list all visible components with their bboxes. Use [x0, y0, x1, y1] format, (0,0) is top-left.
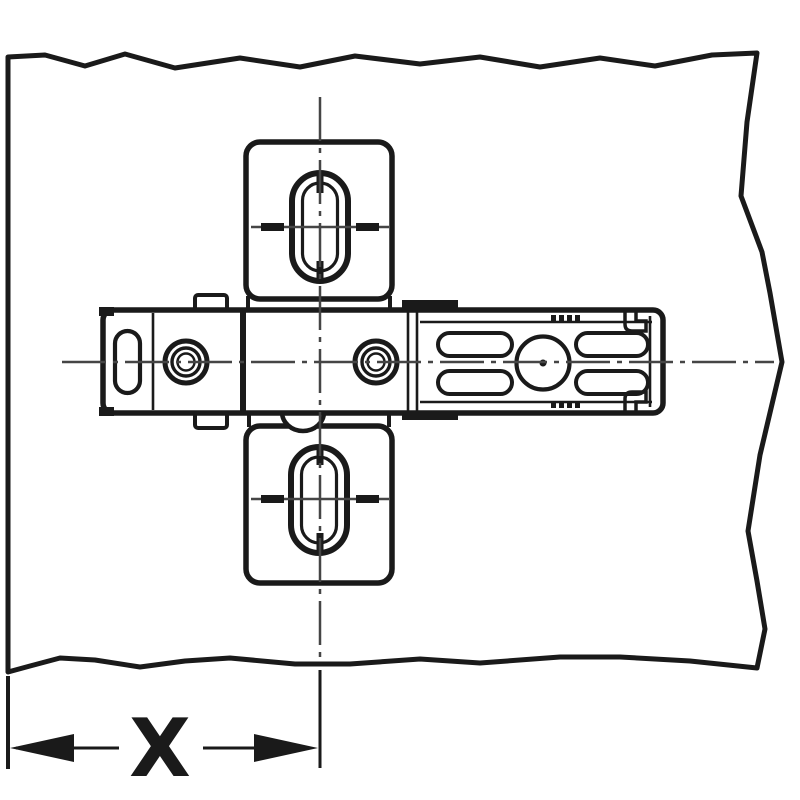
- dimension-label: X: [129, 702, 191, 795]
- arrowhead-left: [10, 734, 74, 762]
- arm-slot-bottom-left: [438, 371, 512, 394]
- diagram-canvas: X: [0, 0, 800, 800]
- arm-slot-top-left: [438, 333, 512, 356]
- dimension-x: X: [8, 670, 320, 795]
- hinge-mounting-drawing: X: [0, 0, 800, 800]
- arm-left-corner-cap-bottom: [99, 407, 114, 416]
- arm-slot-top-right: [576, 333, 648, 356]
- arm-left-corner-cap-top: [99, 307, 114, 316]
- arrowhead-right: [254, 734, 318, 762]
